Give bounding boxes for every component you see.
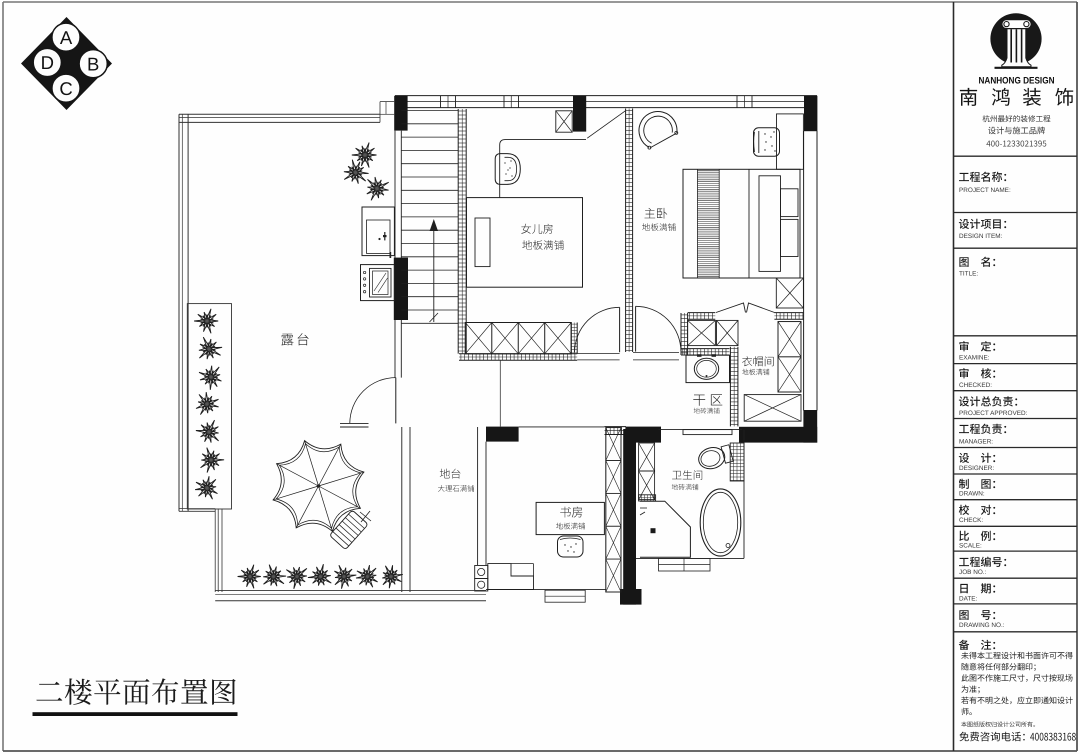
svg-text:EXAMINE:: EXAMINE: — [959, 355, 990, 362]
svg-text:B: B — [87, 53, 99, 74]
svg-text:DESIGNER:: DESIGNER: — [959, 465, 994, 472]
svg-text:D: D — [41, 52, 54, 73]
svg-text:TITLE:: TITLE: — [959, 271, 978, 278]
svg-text:C: C — [59, 78, 72, 99]
svg-text:JOB NO.:: JOB NO.: — [959, 569, 987, 576]
svg-text:NANHONG DESIGN: NANHONG DESIGN — [979, 76, 1055, 87]
svg-text:DRAWN:: DRAWN: — [959, 491, 985, 498]
svg-text:MANAGER:: MANAGER: — [959, 439, 993, 446]
svg-text:CHECKED:: CHECKED: — [959, 382, 992, 389]
svg-text:DRAWING NO.:: DRAWING NO.: — [959, 622, 1005, 629]
svg-text:DATE:: DATE: — [959, 596, 978, 603]
svg-text:PROJECT NAME:: PROJECT NAME: — [959, 187, 1011, 194]
svg-text:PROJECT APPROVED:: PROJECT APPROVED: — [959, 410, 1028, 417]
svg-text:CHECK:: CHECK: — [959, 517, 983, 524]
svg-text:A: A — [60, 27, 73, 48]
svg-text:DESIGN ITEM:: DESIGN ITEM: — [959, 233, 1003, 240]
svg-text:SCALE:: SCALE: — [959, 543, 982, 550]
